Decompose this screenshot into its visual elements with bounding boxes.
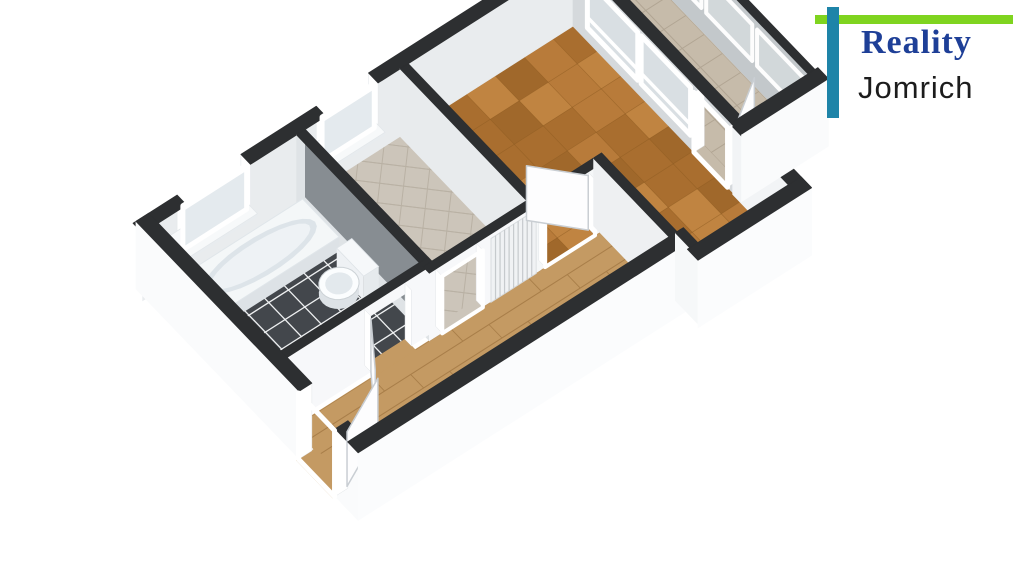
floorplan-page: Reality Jomrich [0, 0, 1024, 576]
living-room-door [526, 166, 588, 230]
floorplan-3d-render [0, 0, 1024, 576]
